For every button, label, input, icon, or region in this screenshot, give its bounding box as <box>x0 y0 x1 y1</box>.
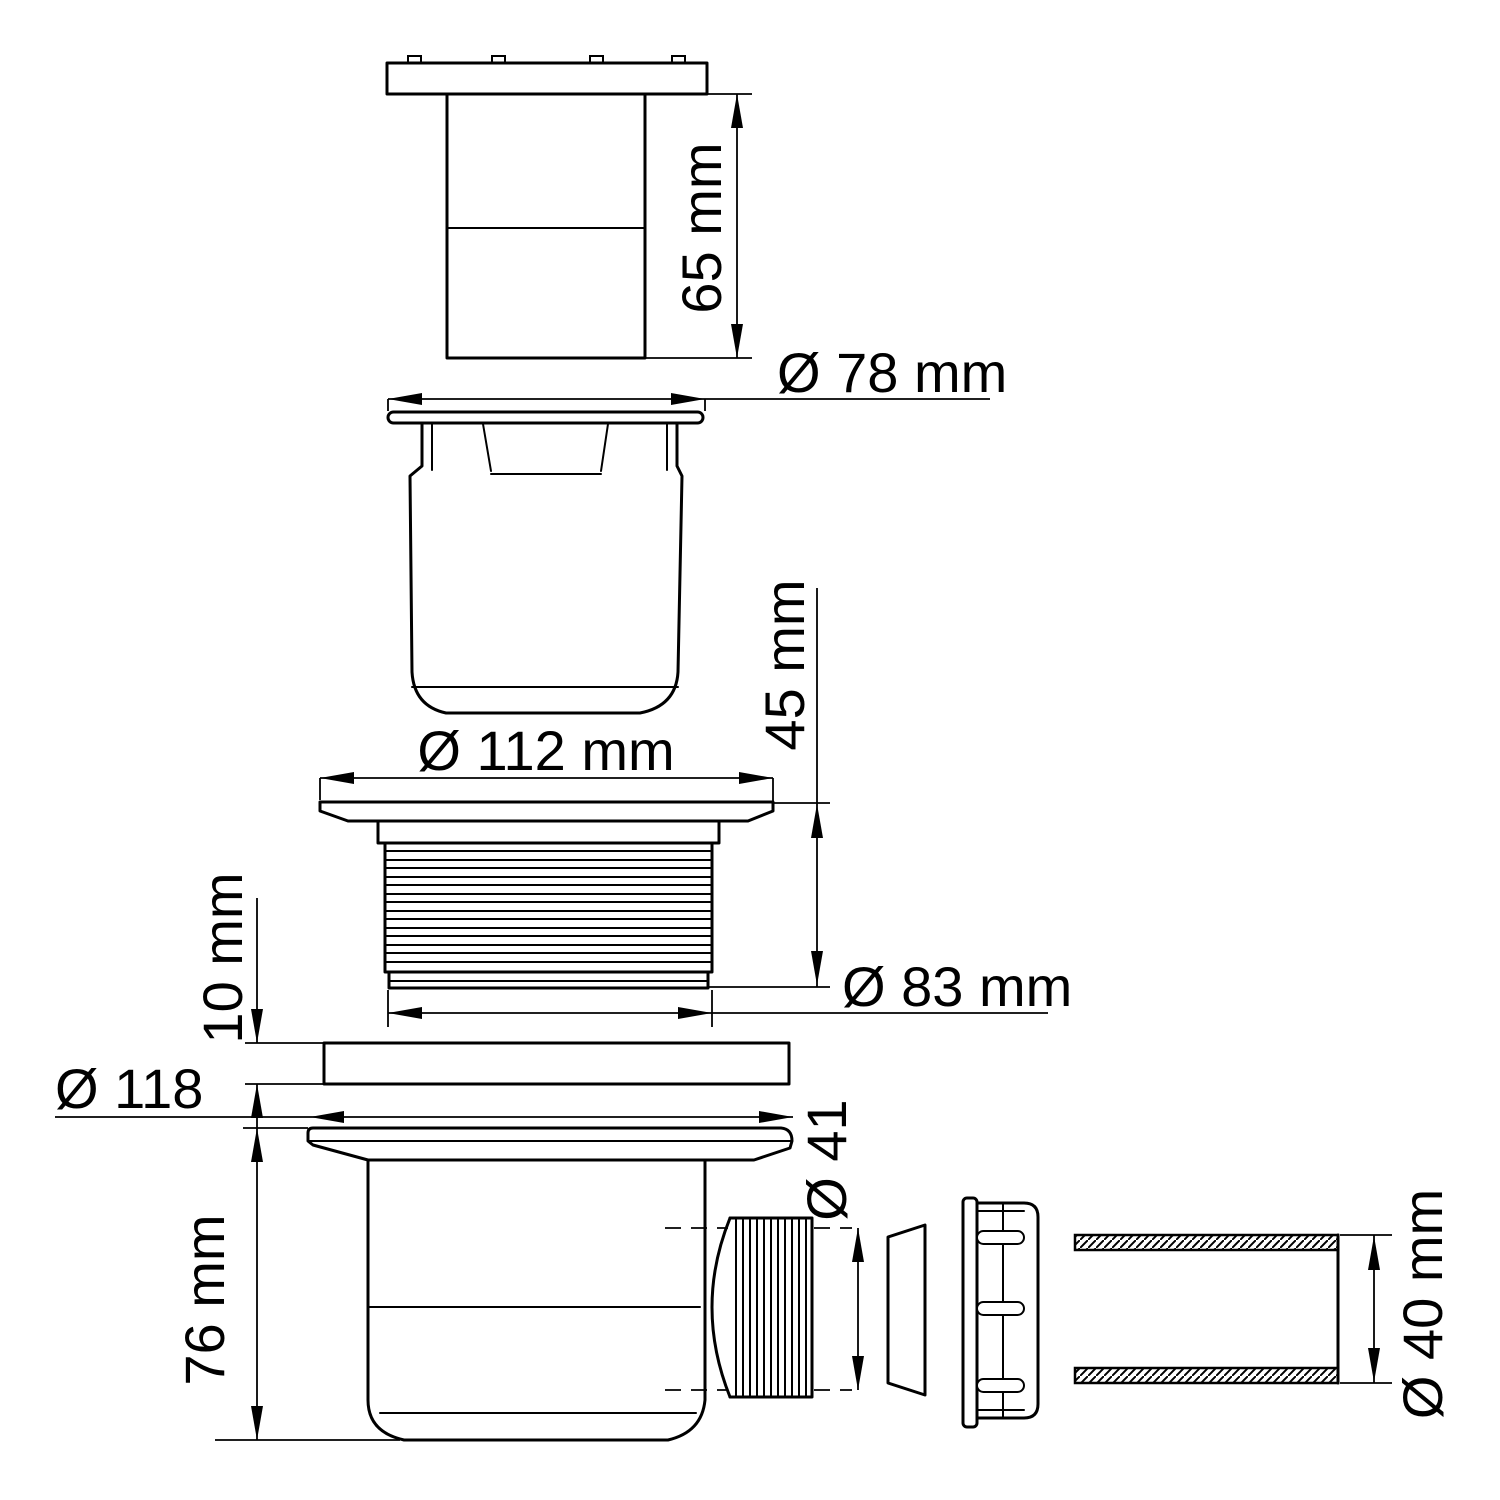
cap-flange <box>387 63 707 94</box>
dim-label-cap-flange-diameter: Ø 78 mm <box>777 341 1007 404</box>
arrowhead <box>852 1228 864 1262</box>
dim-ring-thread-diameter: Ø 83 mm <box>388 955 1072 1027</box>
ring-flange <box>320 802 773 821</box>
dim-label-seal-thickness: 10 mm <box>191 872 254 1043</box>
dim-pipe-diameter: Ø 40 mm <box>1340 1189 1454 1419</box>
union-nut-part <box>963 1198 1038 1427</box>
arrowhead <box>1368 1236 1380 1270</box>
strainer-cup-part <box>388 412 703 713</box>
arrowhead <box>251 1406 263 1440</box>
dim-body-height: 76 mm <box>173 1084 400 1440</box>
arrowhead <box>759 1111 793 1123</box>
arrowhead <box>731 324 743 358</box>
dim-label-cap-height: 65 mm <box>670 142 733 313</box>
arrowhead <box>1368 1348 1380 1382</box>
body-flange <box>308 1128 792 1160</box>
seal-disc <box>324 1043 789 1084</box>
cap-cylinder <box>447 94 645 358</box>
arrowhead <box>320 772 354 784</box>
ring-neck <box>378 821 719 843</box>
arrowhead <box>678 1007 712 1019</box>
arrowhead <box>811 951 823 985</box>
arrowhead <box>388 393 422 405</box>
nut-flange-plate <box>963 1198 977 1427</box>
washer <box>888 1225 925 1395</box>
dim-label-cup-height: 45 mm <box>753 579 816 750</box>
nut-rib <box>977 1302 1024 1315</box>
cup-body <box>410 423 682 713</box>
threaded-ring-part <box>320 802 773 988</box>
technical-drawing: 65 mm Ø 78 mm 45 mm Ø 112 mm <box>0 0 1500 1500</box>
body-shell <box>368 1160 705 1440</box>
arrowhead <box>310 1111 344 1123</box>
top-cap-part <box>387 56 707 358</box>
nut-rib <box>977 1379 1024 1392</box>
pipe-top-wall <box>1075 1235 1338 1250</box>
dim-seal-thickness: 10 mm <box>191 872 324 1118</box>
ring-thread-lines <box>385 851 712 962</box>
pipe-bottom-wall <box>1075 1368 1338 1383</box>
dim-cup-height: 45 mm <box>708 579 830 987</box>
dim-label-body-height: 76 mm <box>173 1214 236 1385</box>
arrowhead <box>739 772 773 784</box>
dim-cap-flange-diameter: Ø 78 mm <box>388 341 1007 411</box>
arrowhead <box>811 804 823 838</box>
dim-label-pipe-diameter: Ø 40 mm <box>1391 1189 1454 1419</box>
arrowhead <box>251 1128 263 1162</box>
washer-part <box>888 1225 925 1395</box>
dim-cup-flange-diameter: Ø 112 mm <box>320 719 773 801</box>
dim-label-outlet-diameter: Ø 41 <box>795 1099 858 1220</box>
dim-label-cup-flange-diameter: Ø 112 mm <box>417 719 674 782</box>
outlet-thread-lines <box>736 1219 806 1396</box>
arrowhead <box>852 1356 864 1390</box>
drawing-page: 65 mm Ø 78 mm 45 mm Ø 112 mm <box>0 0 1500 1500</box>
pipe-part <box>1075 1235 1338 1383</box>
dim-label-ring-thread-diameter: Ø 83 mm <box>842 955 1072 1018</box>
arrowhead <box>731 94 743 128</box>
arrowhead <box>388 1007 422 1019</box>
seal-disc-part <box>324 1043 789 1084</box>
nut-rib <box>977 1231 1024 1244</box>
dim-label-flange-diameter: Ø 118 <box>55 1057 203 1120</box>
cup-funnel <box>483 424 608 474</box>
trap-body-part <box>308 1128 852 1440</box>
cup-flange <box>388 412 703 423</box>
dim-cap-height: 65 mm <box>645 94 752 358</box>
outlet-root-curve <box>712 1218 730 1397</box>
arrowhead <box>671 393 705 405</box>
